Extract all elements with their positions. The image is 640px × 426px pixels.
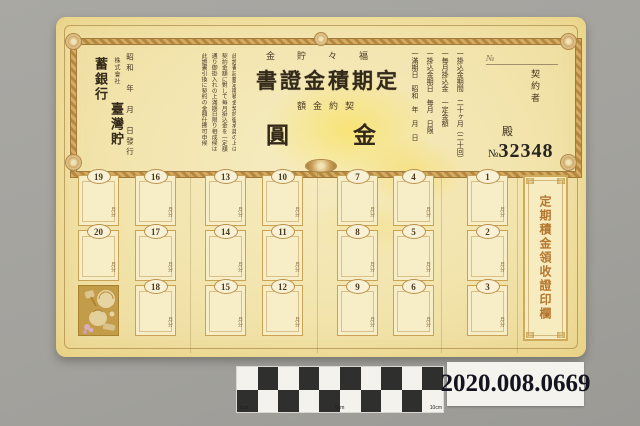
coupon-number-badge: 5 [402,224,426,239]
scale-square [381,390,402,413]
serial-number: №32348 [488,140,554,163]
coupon-box: 7 月分 [337,175,378,226]
conditions-line: 契約金額に對して毎月掛込金を一定額 [220,53,226,165]
serial-prefix: № [488,148,499,160]
photo-background: 株式會社 臺灣貯蓄銀行 昭和 年 月 日發行 此證書記載定期積金契約御承諾の上は… [0,0,640,426]
coupon-number-badge: 15 [214,279,238,294]
scale-square [278,367,299,390]
contractor-block: № 契約者 殿 №32348 [484,47,578,161]
terms-item: 一掛込金期間 二十ヶ月（二十回） [456,50,464,164]
conditions-line: 此證書記載定期積金契約御承諾の上は [230,53,236,165]
contractor-label: 契約者 [530,69,539,105]
certificate-title: 書證金積期定 [256,65,384,95]
coupon-column: 7 月分 8 月分 9 月分 [337,175,378,336]
scale-label-1cm: 1cm [239,405,248,411]
coupon-box: 1 月分 [467,175,508,226]
coupon-number-badge: 16 [144,169,168,184]
scale-square [361,367,382,390]
scale-square [299,390,320,413]
coupon-column: 19 月分 20 月分 [78,175,119,336]
coupon-number-badge: 7 [346,169,370,184]
coupon-number-badge: 4 [402,169,426,184]
coupon-number-badge: 10 [271,169,295,184]
coupon-box: 18 月分 [135,285,176,336]
receipt-stamp-panel-title: 定期積金領收證印欄 [537,195,554,321]
coupon-column: 16 月分 17 月分 18 月分 [135,175,176,336]
scale-square [278,390,299,413]
catalog-label: 2020.008.0669 [447,362,584,406]
scale-square [361,390,382,413]
product-name-text: 金貯々福 [266,49,390,62]
coupon-number-badge: 12 [271,279,295,294]
coupon-column: 1 月分 2 月分 3 月分 [467,175,508,336]
coupon-month-label: 月分 [293,317,300,327]
coupon-box: 15 月分 [205,285,246,336]
coupon-month-label: 月分 [424,262,431,272]
treasure-emblem-drawing [79,286,119,336]
coupon-month-label: 月分 [236,207,243,217]
no-symbol: № [486,53,495,63]
scale-square [402,390,423,413]
coupon-month-label: 月分 [498,262,505,272]
coupon-month-label: 月分 [236,317,243,327]
panel-corner-ornament [557,178,565,184]
coupon-month-label: 月分 [236,262,243,272]
coupon-column: 4 月分 5 月分 6 月分 [393,175,434,336]
coupon-month-label: 月分 [368,262,375,272]
coupon-month-label: 月分 [109,207,116,217]
receipt-stamp-panel: 定期積金領收證印欄 [523,175,568,341]
coupon-number-badge: 2 [476,224,500,239]
coupon-number-badge: 3 [476,279,500,294]
coupon-box: 9 月分 [337,285,378,336]
coupon-number-badge: 1 [476,169,500,184]
coupon-box: 5 月分 [393,230,434,281]
rosette-icon [315,33,327,45]
scale-bar: 1cm 5cm 10cm [237,367,443,412]
scale-square [319,367,340,390]
coupon-number-badge: 13 [214,169,238,184]
coupon-number-badge: 9 [346,279,370,294]
coupon-month-label: 月分 [368,317,375,327]
terms-item: 一毎月掛込金 一定金額 [441,50,449,164]
panel-corner-ornament [526,178,534,184]
honorific-label: 殿 [502,123,513,139]
title-block: 金貯々福 書證金積期定 額金約契 圓 金 [256,49,384,150]
serial-digits: 32348 [499,140,554,162]
coupon-month-label: 月分 [166,207,173,217]
coupon-month-label: 月分 [109,262,116,272]
coupon-month-label: 月分 [293,207,300,217]
scale-square [402,367,423,390]
panel-corner-ornament [557,332,565,338]
scale-label-10cm: 10cm [430,405,442,411]
coupon-box: 19 月分 [78,175,119,226]
scale-square [258,367,279,390]
perforation-line [190,173,191,353]
panel-corner-ornament [526,332,534,338]
coupon-month-label: 月分 [368,207,375,217]
amount-unit-yen: 圓 [266,116,289,150]
coupon-box: 10 月分 [262,175,303,226]
coupon-box: 2 月分 [467,230,508,281]
scale-square [258,390,279,413]
coupon-box: 3 月分 [467,285,508,336]
coupon-column: 10 月分 11 月分 12 月分 [262,175,303,336]
issue-date-line: 昭和 年 月 日發行 [126,53,134,159]
bank-name: 臺灣貯蓄銀行 [93,57,124,147]
scale-square [237,367,258,390]
terms-list: 一掛込金期間 二十ヶ月（二十回） 一毎月掛込金 一定金額 一掛込金期日 毎月 日… [404,50,464,164]
coupon-number-badge: 6 [402,279,426,294]
coupon-box: 17 月分 [135,230,176,281]
coupon-column: 13 月分 14 月分 15 月分 [205,175,246,336]
company-type: 株式會社 [113,57,119,85]
coupon-box: 20 月分 [78,230,119,281]
coupon-month-label: 月分 [424,317,431,327]
coupon-box: 4 月分 [393,175,434,226]
coupon-number-badge: 20 [87,224,111,239]
coupon-month-label: 月分 [166,262,173,272]
rosette-icon [66,34,81,49]
scale-square [299,367,320,390]
rosette-icon [66,155,81,170]
perforation-line [317,173,318,353]
coupon-month-label: 月分 [293,262,300,272]
coupon-box: 13 月分 [205,175,246,226]
coupon-box: 8 月分 [337,230,378,281]
coupon-month-label: 月分 [424,207,431,217]
terms-item: 一掛込金期日 毎月 日限 [426,50,434,164]
coupon-box: 14 月分 [205,230,246,281]
issuer-bank-name: 株式會社 臺灣貯蓄銀行 [92,57,124,153]
amount-unit-kin: 金 [353,116,376,150]
coupon-number-badge: 14 [214,224,238,239]
contract-amount-label: 額金約契 [256,99,384,112]
coupon-month-label: 月分 [498,207,505,217]
scale-label-5cm: 5cm [335,405,344,411]
contract-number-line: № [486,53,558,65]
certificate-card: 株式會社 臺灣貯蓄銀行 昭和 年 月 日發行 此證書記載定期積金契約御承諾の上は… [56,17,586,357]
coupon-box: 11 月分 [262,230,303,281]
amount-row: 圓 金 [256,116,384,150]
coupon-number-badge: 17 [144,224,168,239]
treasure-emblem [78,285,119,336]
coupon-number-badge: 8 [346,224,370,239]
terms-item: 一滿期日 昭和 年 月 日 [411,50,419,164]
perforation-line [441,173,442,353]
coupon-month-label: 月分 [166,317,173,327]
conditions-text: 此證書記載定期積金契約御承諾の上は 契約金額に對して毎月掛込金を一定額 通り御掛… [196,53,236,165]
catalog-number: 2020.008.0669 [441,370,591,398]
product-name: 金貯々福 [256,49,384,62]
coupon-box: 6 月分 [393,285,434,336]
conditions-line: 此證書引換に契約の金額仕拂可申候 [200,53,206,165]
coupon-number-badge: 18 [144,279,168,294]
perforation-line [517,173,518,353]
scale-square [340,367,361,390]
coupon-month-label: 月分 [498,317,505,327]
coupon-box: 12 月分 [262,285,303,336]
coupon-number-badge: 19 [87,169,111,184]
scale-square [381,367,402,390]
coupon-number-badge: 11 [271,224,295,239]
conditions-line: 通り御掛入れの上滿期日限り相成候は [210,53,216,165]
certificate-title-text: 書證金積期定 [256,65,400,95]
coupon-box: 16 月分 [135,175,176,226]
